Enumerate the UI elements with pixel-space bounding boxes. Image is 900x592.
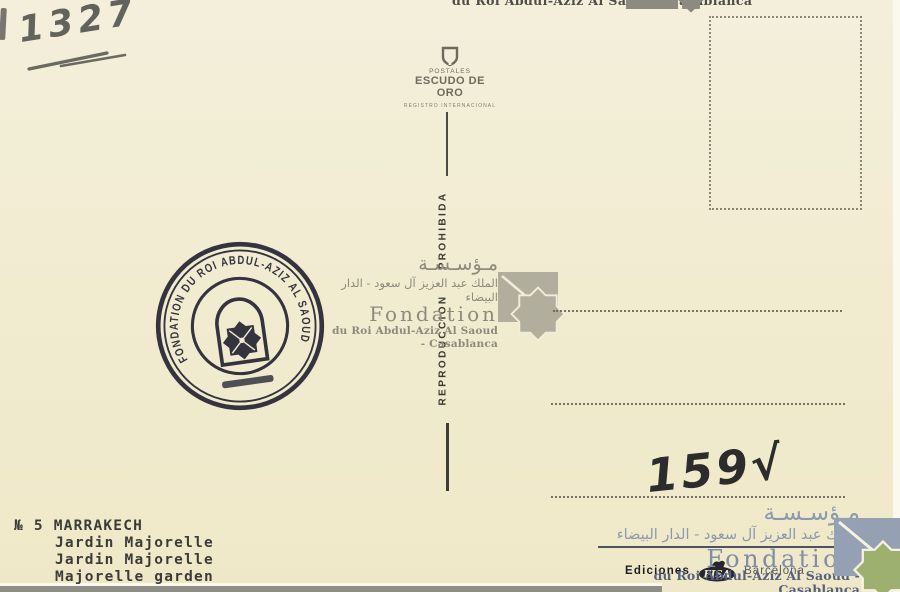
foundation-seal: FONDATION DU ROI ABDUL-AZIZ AL SAOUD (141, 227, 340, 426)
watermark-bottom: مـؤسـسـة الملك عبد العزيز آل سعود - الدا… (588, 500, 860, 592)
watermark-top-text: du Roi Abdul-Aziz Al Saoud - Casablanca (452, 0, 752, 8)
caption-title: № 5 MARRAKECH (14, 518, 214, 535)
watermark-center-logo (498, 270, 566, 346)
watermark-top-bar (626, 0, 678, 9)
publisher-mark-postales: POSTALES (402, 68, 498, 75)
stamp-box (709, 16, 862, 210)
seal-bottom-mark (222, 375, 274, 389)
seal-star-icon (220, 319, 263, 362)
caption-line-fr2: Jardin Majorelle (55, 552, 214, 569)
handwritten-price-note: 159√ (644, 435, 788, 503)
eight-point-star-icon (676, 0, 706, 14)
handwritten-catalog-number: 1327 (16, 0, 141, 51)
scan-edge-right (893, 0, 900, 592)
publisher-mark-name: ESCUDO DE ORO (402, 75, 498, 99)
watermark-arabic-subtitle: الملك عبد العزيز آل سعود - الدار البيضاء (588, 527, 860, 544)
watermark-arabic-title: مـؤسـسـة (328, 253, 498, 276)
publisher-mark: POSTALES ESCUDO DE ORO REGISTRO INTERNAC… (402, 46, 498, 109)
watermark-arabic-subtitle: الملك عبد العزيز آل سعود - الدار البيضاء (328, 276, 498, 304)
shield-icon (439, 46, 461, 67)
address-line (553, 310, 842, 312)
caption-block: № 5 MARRAKECH Jardin Majorelle Jardin Ma… (14, 518, 214, 586)
handwritten-underline (25, 45, 135, 77)
eight-point-star-icon (512, 288, 565, 341)
divider-line-top (446, 112, 448, 176)
scan-edge-bottom-shadow (0, 586, 662, 592)
address-line (551, 403, 845, 405)
watermark-arabic-title: مـؤسـسـة (588, 500, 860, 527)
divider-line-bottom (446, 423, 449, 491)
caption-line-en: Majorelle garden (55, 569, 214, 586)
watermark-fondation: Fondation (328, 304, 498, 325)
watermark-center: مـؤسـسـة الملك عبد العزيز آل سعود - الدا… (328, 253, 498, 351)
publisher-mark-registro: REGISTRO INTERNACIONAL (402, 103, 498, 109)
watermark-bottom-logo (828, 518, 900, 592)
watermark-du-roi: du Roi Abdul-Aziz Al Saoud - Casablanca (328, 325, 498, 351)
postcard-back: 1327 POSTALES ESCUDO DE ORO REGISTRO INT… (0, 0, 900, 592)
scan-edge-mark (0, 8, 7, 40)
watermark-du-roi: du Roi Abdul-Aziz Al Saoud - Casablanca (588, 569, 860, 592)
caption-line-fr: Jardin Majorelle (55, 535, 214, 552)
